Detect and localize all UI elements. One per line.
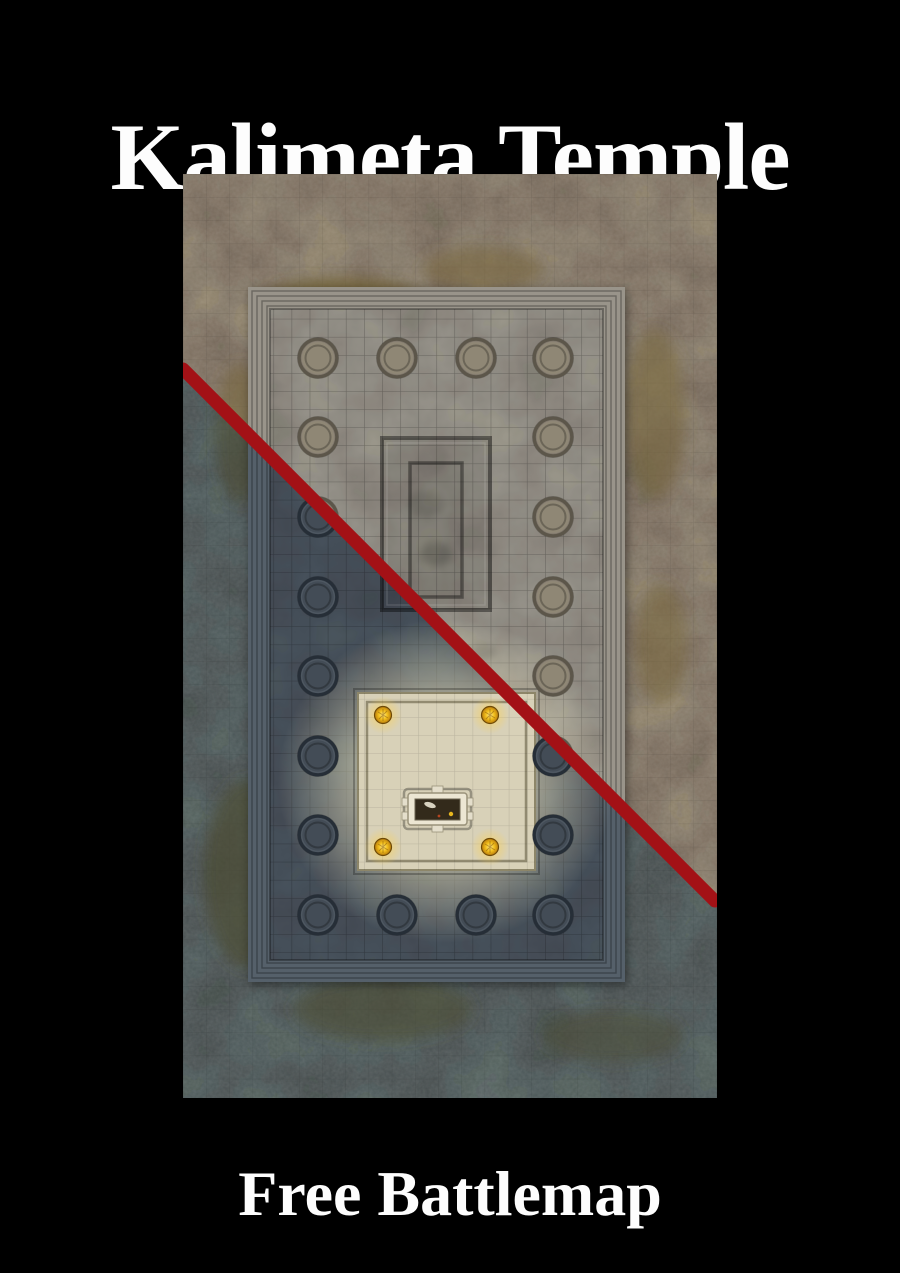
poster: Kalimeta Temple [0, 0, 900, 1273]
footer-label: Free Battlemap [0, 1160, 900, 1227]
battlemap-image [183, 174, 717, 1098]
